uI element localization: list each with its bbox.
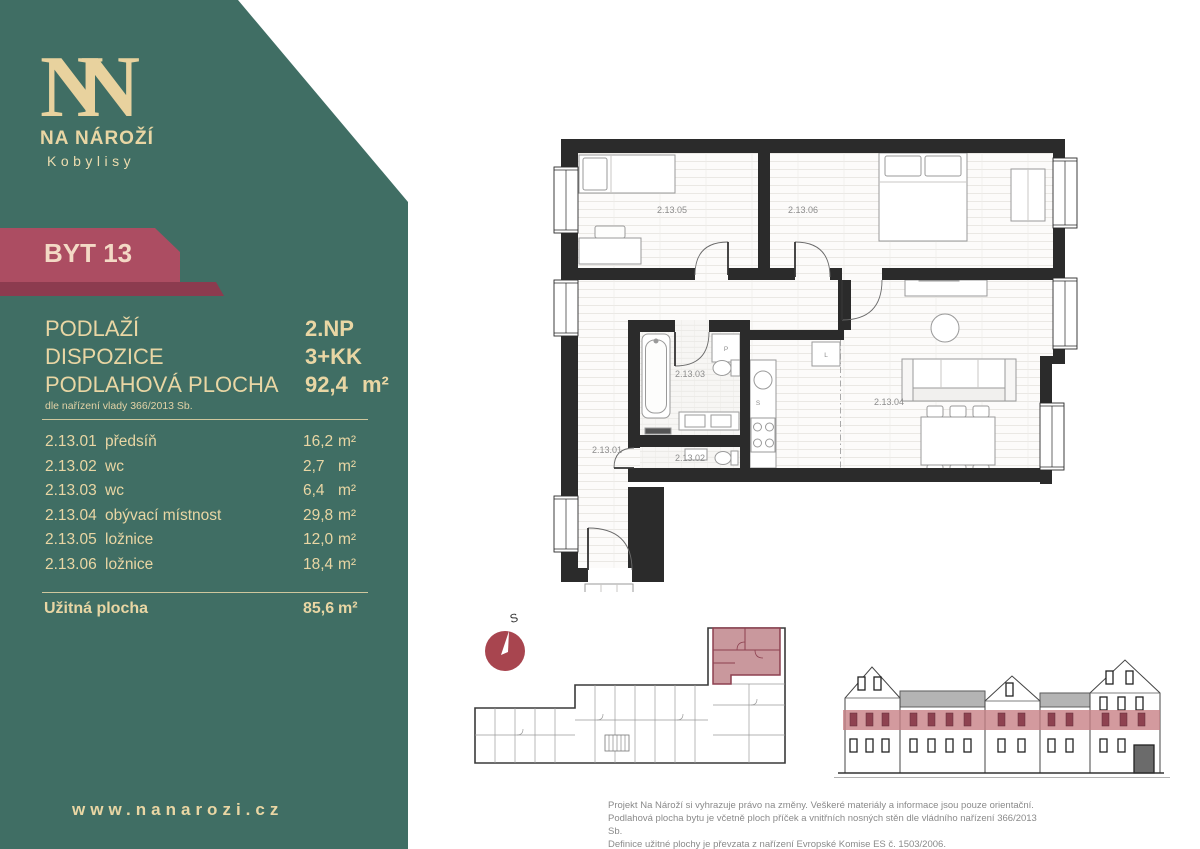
building-elevation bbox=[830, 653, 1170, 783]
room-name: obývací místnost bbox=[105, 507, 221, 525]
disclaimer-line: Projekt Na Nároží si vyhrazuje právo na … bbox=[608, 799, 1048, 812]
window bbox=[1118, 697, 1125, 710]
room-area: 29,8 bbox=[303, 507, 333, 525]
plan-room-label: 2.13.03 bbox=[675, 369, 705, 379]
room-area-unit: m² bbox=[338, 433, 356, 451]
site-plan: S bbox=[455, 605, 815, 790]
compass: S bbox=[485, 610, 525, 671]
roof bbox=[900, 691, 985, 707]
brand-name: NA NÁROŽÍ bbox=[40, 128, 154, 150]
total-area-value: 85,6 bbox=[303, 600, 334, 618]
room-code: 2.13.01 bbox=[45, 433, 97, 451]
entry-stoop bbox=[585, 584, 633, 592]
room-code: 2.13.06 bbox=[45, 556, 97, 574]
bathroom-vanity bbox=[679, 412, 739, 430]
window bbox=[1136, 697, 1143, 710]
window bbox=[946, 739, 953, 752]
shaft-block bbox=[628, 487, 664, 568]
apartment-highlight bbox=[713, 628, 780, 684]
radiator bbox=[645, 428, 671, 434]
room-row: 2.13.06 ložnice 18,4 m² bbox=[0, 556, 408, 580]
dining-table bbox=[921, 406, 995, 476]
room-area: 2,7 bbox=[303, 458, 325, 476]
room-code: 2.13.03 bbox=[45, 482, 97, 500]
window bbox=[850, 739, 857, 752]
window bbox=[1053, 278, 1077, 349]
window bbox=[1040, 403, 1064, 470]
room-area-unit: m² bbox=[338, 531, 356, 549]
window bbox=[1100, 739, 1107, 752]
room-area-unit: m² bbox=[338, 458, 356, 476]
window bbox=[1126, 671, 1133, 684]
brochure-page: NN NA NÁROŽÍ Kobylisy BYT 13 PODLAŽÍ 2.N… bbox=[0, 0, 1200, 849]
window bbox=[1066, 739, 1073, 752]
room-code: 2.13.04 bbox=[45, 507, 97, 525]
window bbox=[882, 739, 889, 752]
room-name: wc bbox=[105, 458, 124, 476]
room-name: ložnice bbox=[105, 556, 153, 574]
window bbox=[1048, 739, 1055, 752]
plan-room-label: 2.13.05 bbox=[657, 205, 687, 215]
room-area: 12,0 bbox=[303, 531, 333, 549]
window bbox=[1053, 158, 1077, 228]
summary-label-floor: PODLAŽÍ bbox=[45, 316, 139, 342]
window bbox=[874, 677, 881, 690]
summary-value-floor: 2.NP bbox=[305, 316, 354, 342]
stairwell bbox=[605, 735, 629, 751]
summary-unit-area: m² bbox=[362, 372, 389, 398]
disclaimer-line: Podlahová plocha bytu je včetně ploch př… bbox=[608, 812, 1048, 838]
room-name: ložnice bbox=[105, 531, 153, 549]
entrance-door bbox=[1134, 745, 1154, 773]
window bbox=[964, 739, 971, 752]
single-bed bbox=[579, 155, 675, 193]
floor-plan: 2.13.05 2.13.06 2.13.03 2.13.02 2.13.01 … bbox=[545, 122, 1115, 592]
room-area-unit: m² bbox=[338, 556, 356, 574]
double-bed bbox=[879, 153, 967, 241]
fridge-label: L bbox=[824, 352, 828, 359]
summary-value-area: 92,4 bbox=[305, 372, 348, 398]
plan-room-label: 2.13.02 bbox=[675, 453, 705, 463]
room-row: 2.13.02 wc 2,7 m² bbox=[0, 458, 408, 482]
summary-label-area: PODLAHOVÁ PLOCHA bbox=[45, 372, 279, 398]
window bbox=[1100, 697, 1107, 710]
bathtub bbox=[642, 334, 670, 418]
room-area-unit: m² bbox=[338, 482, 356, 500]
washer-label: P bbox=[724, 346, 728, 353]
summary-value-layout: 3+KK bbox=[305, 344, 362, 370]
unit-badge: BYT 13 bbox=[44, 238, 132, 269]
room-name: předsíň bbox=[105, 433, 157, 451]
room-area: 18,4 bbox=[303, 556, 333, 574]
sink-label: S bbox=[756, 400, 761, 407]
brand-location: Kobylisy bbox=[47, 153, 135, 169]
window bbox=[866, 739, 873, 752]
divider bbox=[42, 592, 368, 593]
website-link[interactable]: www.nanarozi.cz bbox=[72, 800, 283, 820]
room-code: 2.13.05 bbox=[45, 531, 97, 549]
brand-logo-icon: NN bbox=[40, 48, 160, 126]
window bbox=[1006, 683, 1013, 696]
sidebar: NN NA NÁROŽÍ Kobylisy BYT 13 PODLAŽÍ 2.N… bbox=[0, 0, 408, 849]
kitchen-counter bbox=[750, 360, 776, 468]
summary-label-layout: DISPOZICE bbox=[45, 344, 164, 370]
window bbox=[998, 739, 1005, 752]
plan-room-label: 2.13.01 bbox=[592, 445, 622, 455]
divider bbox=[42, 419, 368, 420]
window bbox=[928, 739, 935, 752]
sofa bbox=[902, 359, 1016, 401]
round-table bbox=[931, 314, 959, 342]
room-area: 16,2 bbox=[303, 433, 333, 451]
disclaimer: Projekt Na Nároží si vyhrazuje právo na … bbox=[608, 799, 1048, 849]
plan-room-label: 2.13.04 bbox=[874, 397, 904, 407]
window bbox=[554, 496, 578, 552]
window bbox=[554, 167, 578, 233]
room-name: wc bbox=[105, 482, 124, 500]
wc-toilet bbox=[715, 451, 738, 465]
window bbox=[910, 739, 917, 752]
room-row: 2.13.01 předsíň 16,2 m² bbox=[0, 433, 408, 457]
roof bbox=[1040, 693, 1090, 707]
window bbox=[1118, 739, 1125, 752]
window bbox=[1018, 739, 1025, 752]
logo-letters: NN bbox=[40, 39, 140, 136]
plan-room-label: 2.13.06 bbox=[788, 205, 818, 215]
room-area: 6,4 bbox=[303, 482, 325, 500]
total-area-label: Užitná plocha bbox=[44, 600, 148, 618]
compass-north-label: S bbox=[508, 610, 519, 626]
total-area-unit: m² bbox=[338, 600, 358, 618]
window bbox=[1106, 671, 1113, 684]
room-area-unit: m² bbox=[338, 507, 356, 525]
room-row: 2.13.03 wc 6,4 m² bbox=[0, 482, 408, 506]
room-row: 2.13.05 ložnice 12,0 m² bbox=[0, 531, 408, 555]
kitchen-sink-icon bbox=[754, 371, 772, 389]
room-code: 2.13.02 bbox=[45, 458, 97, 476]
window bbox=[554, 280, 578, 336]
room-row: 2.13.04 obývací místnost 29,8 m² bbox=[0, 507, 408, 531]
unit-ribbon-shadow bbox=[0, 282, 224, 296]
unit-ribbon: BYT 13 bbox=[0, 228, 180, 282]
summary-note: dle nařízení vlady 366/2013 Sb. bbox=[45, 400, 193, 412]
disclaimer-line: Definice užitné plochy je převzata z nař… bbox=[608, 838, 1048, 849]
window bbox=[858, 677, 865, 690]
toilet bbox=[713, 360, 740, 376]
wardrobe bbox=[1011, 169, 1045, 221]
